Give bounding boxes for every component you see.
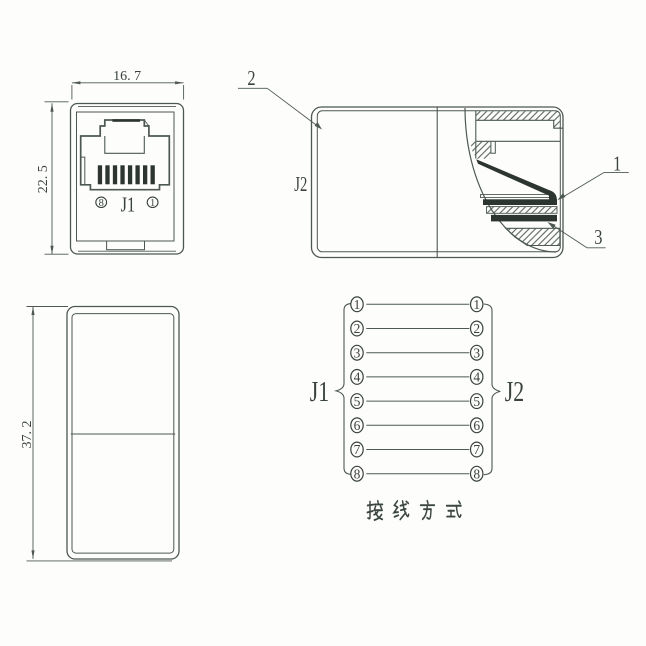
svg-text:1: 1	[473, 297, 480, 312]
svg-text:1: 1	[150, 198, 155, 209]
svg-text:2: 2	[354, 321, 361, 336]
svg-text:8: 8	[99, 198, 104, 209]
svg-text:2: 2	[247, 67, 255, 90]
svg-text:J2: J2	[505, 378, 524, 408]
svg-text:J2: J2	[294, 172, 307, 195]
svg-text:2: 2	[473, 321, 480, 336]
svg-text:8: 8	[473, 466, 480, 481]
svg-text:5: 5	[354, 394, 361, 409]
svg-text:7: 7	[473, 442, 480, 457]
svg-text:4: 4	[354, 370, 361, 385]
svg-text:6: 6	[354, 418, 361, 433]
svg-text:1: 1	[354, 297, 361, 312]
svg-text:1: 1	[613, 153, 621, 176]
svg-text:8: 8	[354, 466, 361, 481]
svg-text:J1: J1	[310, 378, 329, 408]
svg-text:3: 3	[473, 345, 480, 360]
svg-text:22. 5: 22. 5	[36, 165, 51, 193]
svg-text:6: 6	[473, 418, 480, 433]
svg-text:J1: J1	[121, 194, 136, 217]
svg-text:37. 2: 37. 2	[20, 421, 35, 449]
svg-text:5: 5	[473, 394, 480, 409]
svg-text:4: 4	[473, 370, 480, 385]
svg-text:16. 7: 16. 7	[113, 69, 141, 84]
svg-text:7: 7	[354, 442, 361, 457]
svg-text:3: 3	[594, 226, 602, 249]
svg-text:3: 3	[354, 345, 361, 360]
